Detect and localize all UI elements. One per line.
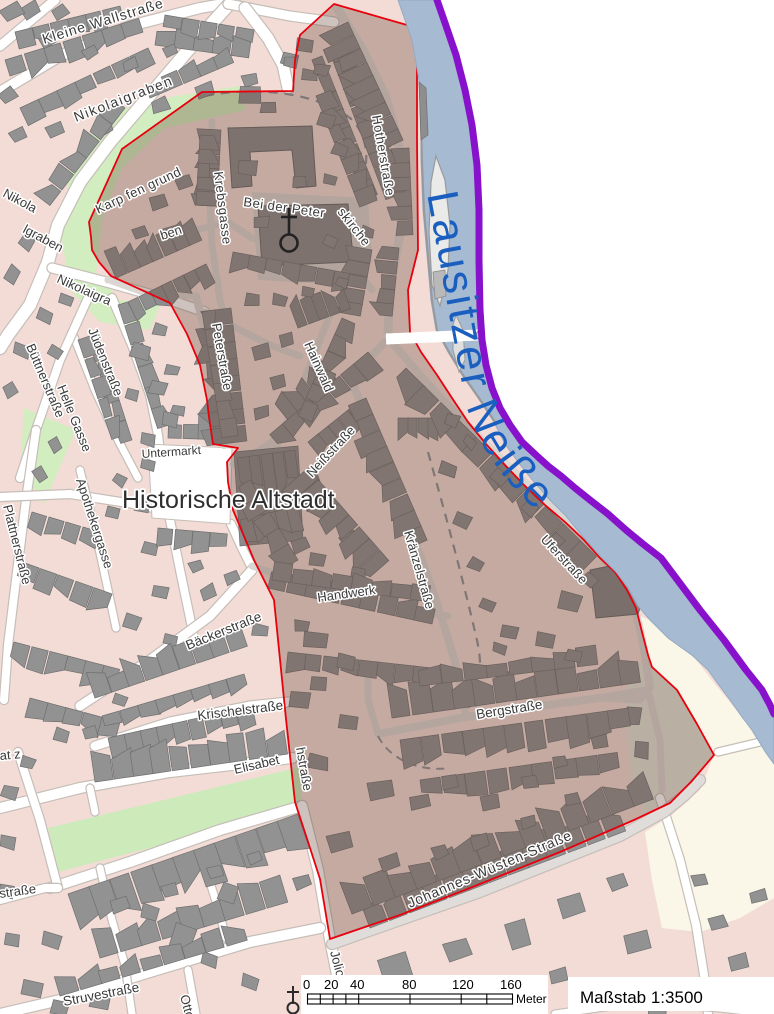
- svg-text:0: 0: [303, 977, 310, 992]
- svg-text:Meter: Meter: [516, 992, 547, 1006]
- svg-text:20: 20: [324, 977, 338, 992]
- svg-text:120: 120: [452, 977, 474, 992]
- svg-text:Maßstab 1:3500: Maßstab 1:3500: [580, 988, 703, 1007]
- svg-text:160: 160: [500, 977, 522, 992]
- svg-text:at z: at z: [0, 746, 21, 763]
- svg-text:40: 40: [350, 977, 364, 992]
- svg-text:80: 80: [402, 977, 416, 992]
- svg-text:Historische Altstadt: Historische Altstadt: [122, 486, 335, 514]
